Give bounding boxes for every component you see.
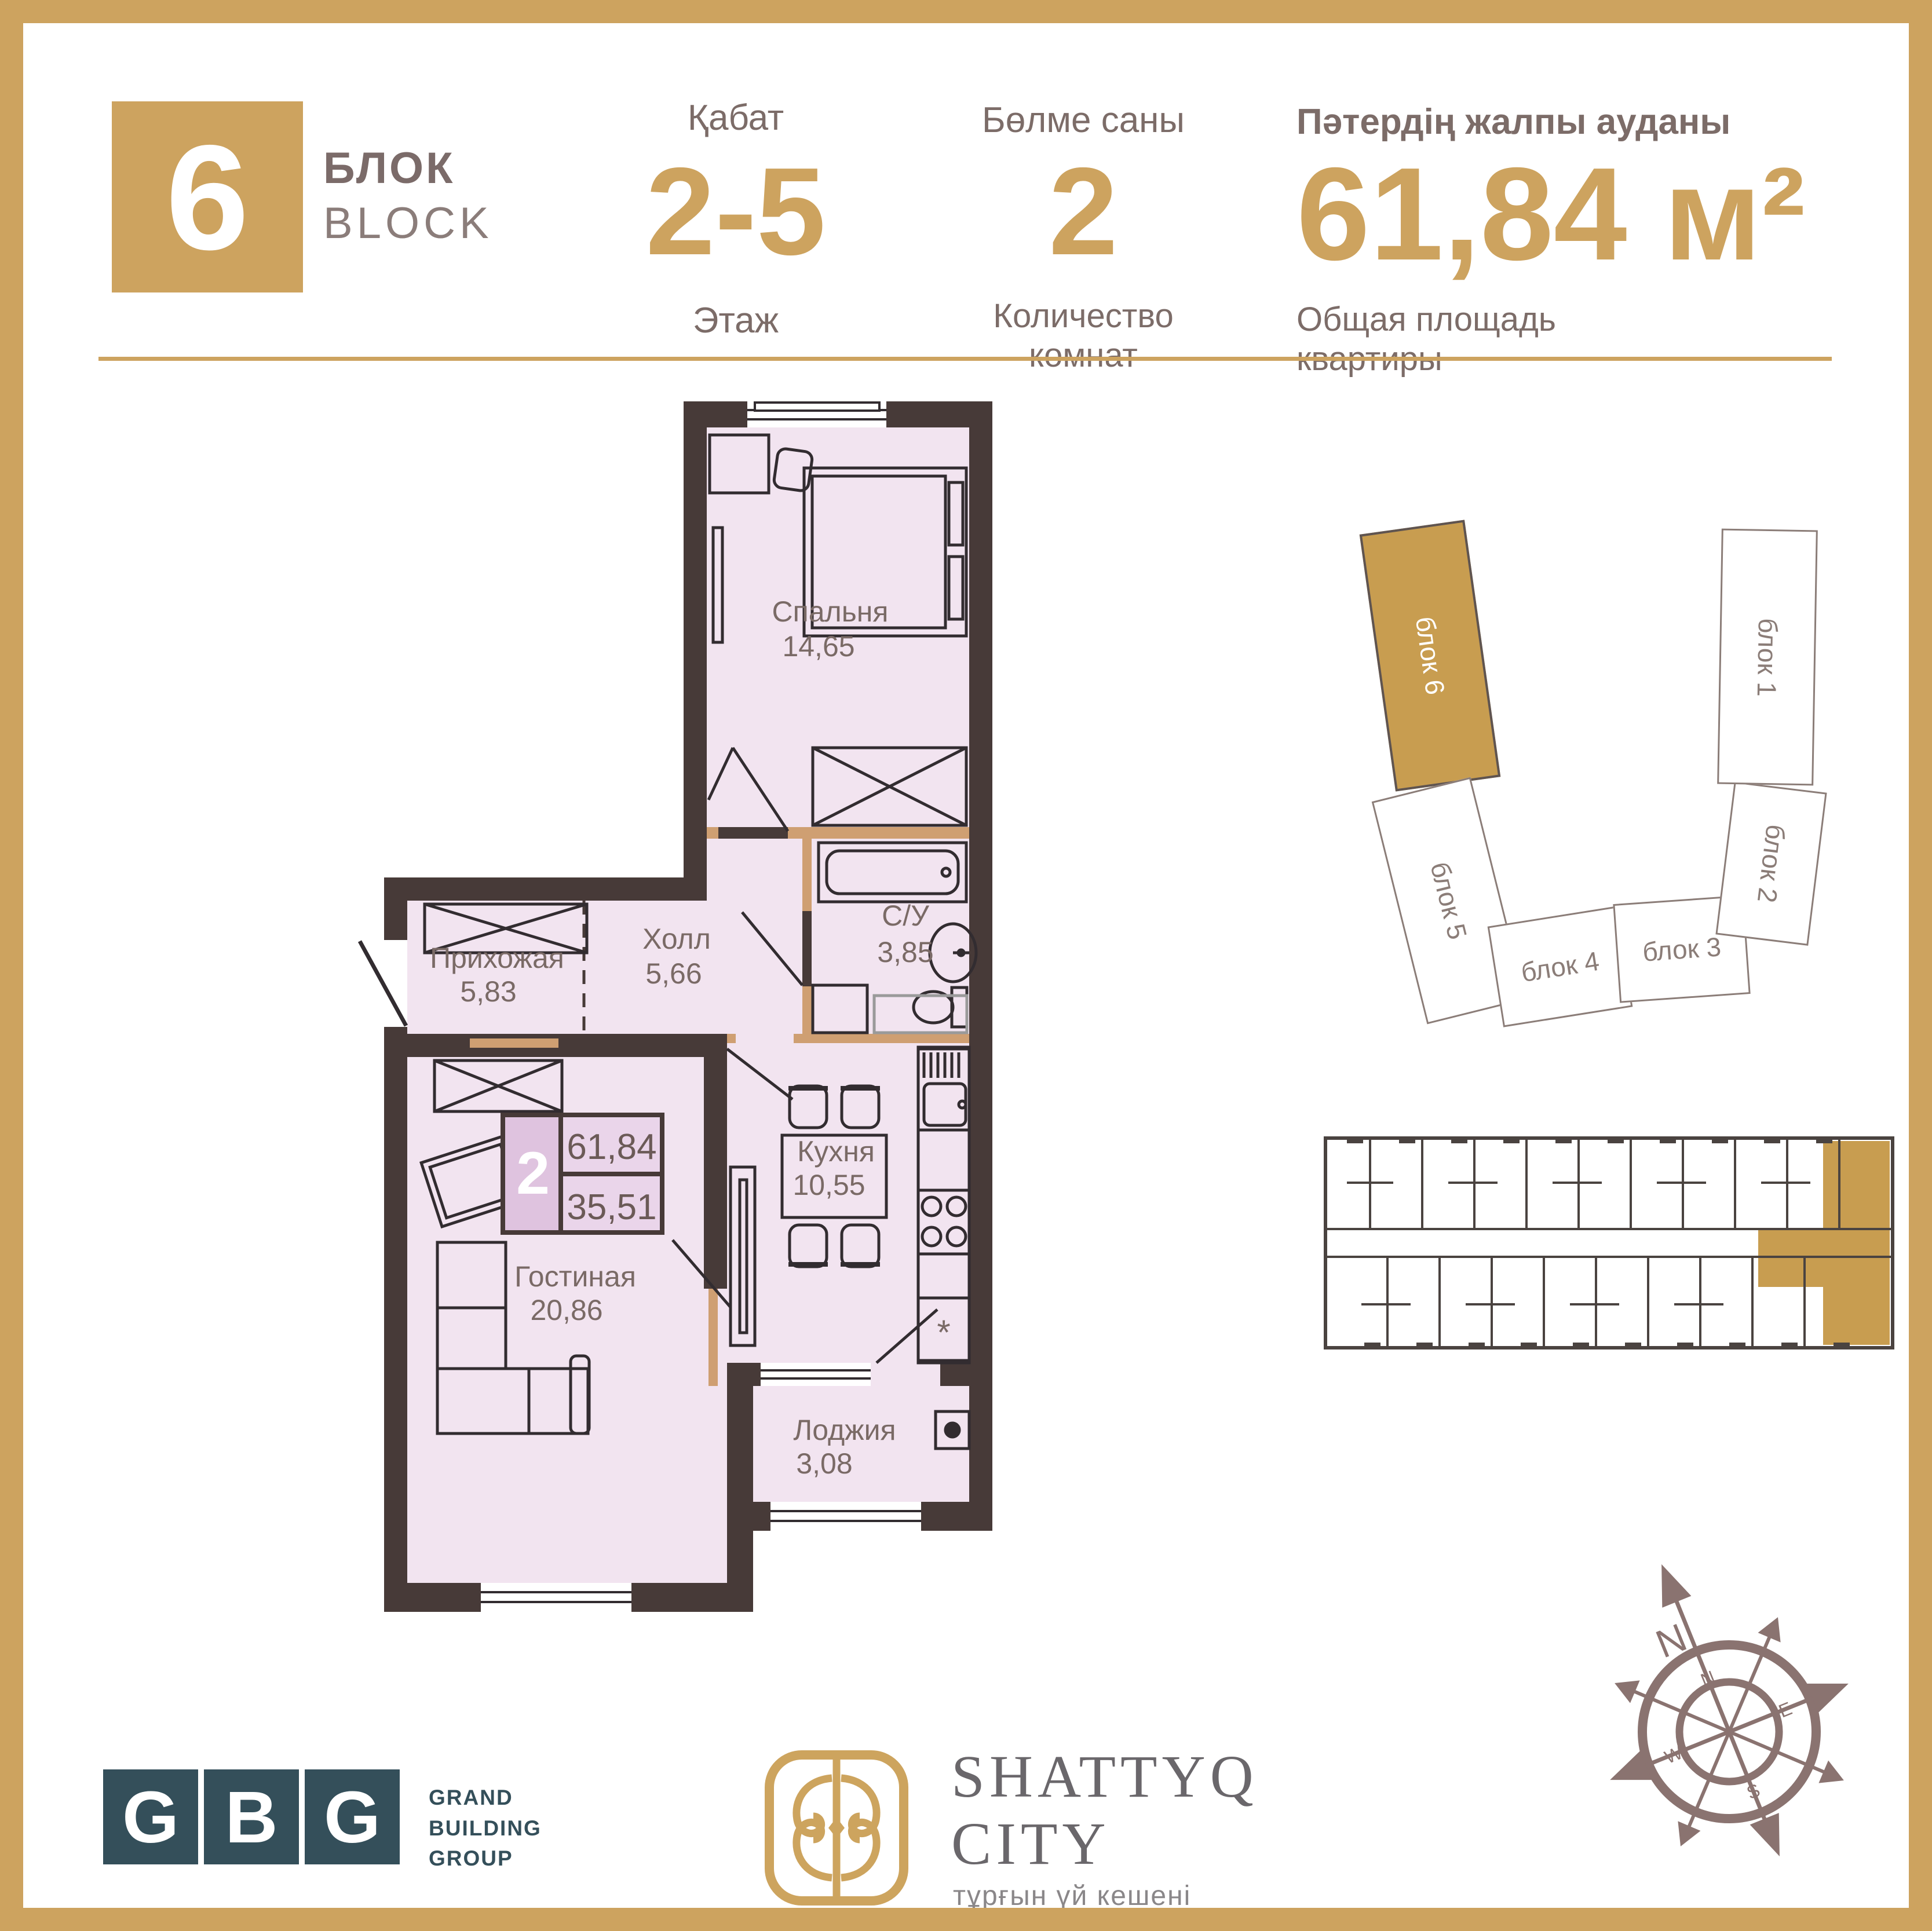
shattyq-emblem-icon xyxy=(764,1749,910,1907)
floor-label-ru: Этаж xyxy=(597,300,875,341)
room-label: Гостиная xyxy=(514,1260,636,1293)
gbg-name-line: GRAND xyxy=(429,1783,542,1813)
site-block-3-label: блок 3 xyxy=(1641,931,1722,967)
site-block-1-label: блок 1 xyxy=(1751,617,1784,697)
badge-total-area: 61,84 xyxy=(567,1127,656,1167)
gbg-logo-square-3: G xyxy=(305,1769,400,1864)
gbg-name-line: GROUP xyxy=(429,1844,542,1874)
room-label: Лоджия xyxy=(793,1414,896,1446)
room-area: 14,65 xyxy=(782,630,854,663)
gbg-name-line: BUILDING xyxy=(429,1813,542,1844)
floor-strip-plan xyxy=(1324,1136,1894,1349)
compass-body: N N E S W xyxy=(1596,1541,1868,1877)
area-label-kk: Пәтердің жалпы ауданы xyxy=(1296,101,1864,142)
block-label-en: BLOCK xyxy=(323,198,493,248)
badge-rooms: 2 xyxy=(516,1140,550,1207)
shattyq-title-line2: CITY xyxy=(951,1809,1111,1878)
rooms-value: 2 xyxy=(962,149,1205,273)
site-block-2-label: блок 2 xyxy=(1751,822,1791,904)
room-area: 20,86 xyxy=(530,1294,602,1326)
site-block-2: блок 2 xyxy=(1715,781,1827,946)
site-block-6-label: блок 6 xyxy=(1409,615,1451,697)
floor-column: Қабат 2-5 Этаж xyxy=(597,97,875,341)
rooms-label-ru-1: Количество xyxy=(962,297,1205,336)
shattyq-subtitle: тұрғын үй кешені xyxy=(953,1880,1191,1912)
room-area: 5,66 xyxy=(645,957,702,990)
compass-dial-s: S xyxy=(1744,1779,1763,1803)
rooms-label-kk: Бөлме саны xyxy=(962,100,1205,141)
open-door-icon xyxy=(731,1167,755,1345)
gbg-letter: G xyxy=(324,1775,381,1859)
room-area: 3,85 xyxy=(877,936,933,968)
block-label-kk: БЛОК xyxy=(323,143,455,193)
compass-rose: N N E S W xyxy=(1596,1541,1868,1877)
entrance-door xyxy=(360,940,407,1027)
apartment-badge: 2 61,84 35,51 xyxy=(503,1115,662,1233)
room-label: Спальня xyxy=(772,595,889,628)
room-label: Прихожая xyxy=(430,942,564,974)
site-block-4: блок 4 xyxy=(1488,906,1633,1027)
site-block-5-label: блок 5 xyxy=(1424,859,1473,943)
site-block-1: блок 1 xyxy=(1717,529,1818,786)
room-label: С/У xyxy=(882,899,929,932)
badge-living-area: 35,51 xyxy=(567,1187,656,1227)
room-area: 10,55 xyxy=(792,1169,865,1201)
room-area: 3,08 xyxy=(796,1447,852,1480)
compass-arrowheads xyxy=(1596,1541,1868,1877)
fridge-mark: * xyxy=(937,1313,950,1352)
site-block-6: блок 6 xyxy=(1360,520,1501,791)
area-value: 61,84 м² xyxy=(1296,148,1864,280)
area-column: Пәтердің жалпы ауданы 61,84 м² Общая пло… xyxy=(1296,101,1864,379)
floor-value: 2-5 xyxy=(597,149,875,273)
gbg-letter: B xyxy=(225,1775,278,1859)
floor-plan: 2 61,84 35,51 Спальня 14,65 Холл 5,66 С/… xyxy=(355,401,992,1618)
site-block-4-label: блок 4 xyxy=(1519,945,1601,989)
header-divider xyxy=(98,357,1832,361)
rooms-column: Бөлме саны 2 Количество комнат xyxy=(962,100,1205,376)
gbg-company-name: GRAND BUILDING GROUP xyxy=(429,1783,542,1874)
floor-label-kk: Қабат xyxy=(597,97,875,138)
flat-plan-poster: 6 БЛОК BLOCK Қабат 2-5 Этаж Бөлме саны 2… xyxy=(0,0,1932,1931)
room-label: Холл xyxy=(642,923,711,955)
gbg-logo-square-2: B xyxy=(204,1769,299,1864)
rooms-label-ru-2: комнат xyxy=(962,336,1205,375)
gbg-letter: G xyxy=(122,1775,179,1859)
room-area: 5,83 xyxy=(460,975,516,1008)
block-number-badge: 6 xyxy=(112,101,303,292)
gbg-logo-square-1: G xyxy=(103,1769,198,1864)
shattyq-title-line1: SHATTYQ xyxy=(951,1742,1258,1811)
room-label: Кухня xyxy=(797,1135,875,1168)
area-label-ru-1: Общая площадь xyxy=(1296,300,1864,339)
